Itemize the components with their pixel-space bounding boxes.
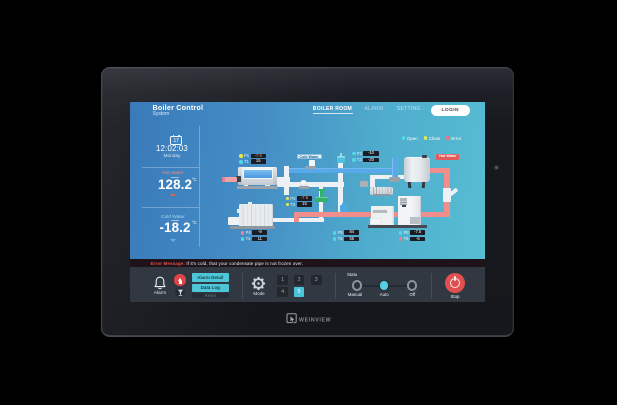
- svg-text:WEINVIEW: WEINVIEW: [299, 318, 331, 324]
